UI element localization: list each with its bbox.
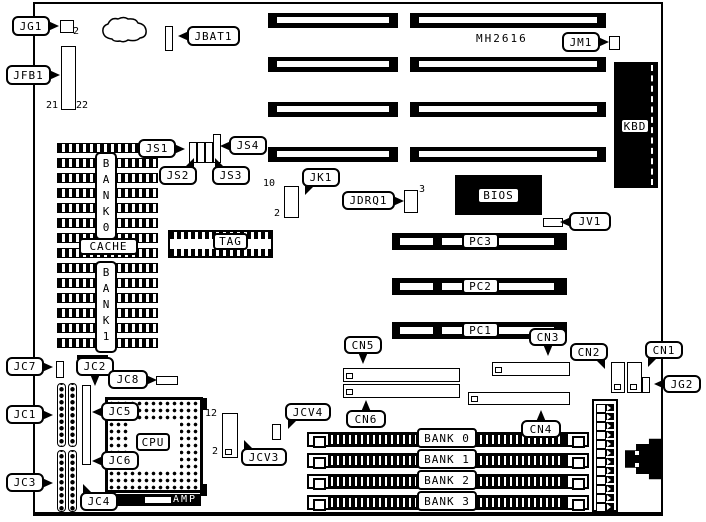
jfb1-pin-21: 21	[46, 100, 58, 112]
thermal-outline	[100, 14, 150, 46]
callout-pointer-left	[92, 456, 103, 466]
callout-jk1: JK1	[302, 168, 340, 187]
callout-js4-text: JS4	[237, 139, 260, 152]
pci-slot-contact-stripe	[498, 283, 554, 290]
jk1-header	[284, 186, 299, 218]
callout-jc7: JC7	[6, 357, 44, 376]
power-pin	[605, 467, 614, 474]
isa-slot-contact-stripe	[419, 17, 597, 23]
amp-label: AMP	[173, 494, 197, 506]
pin-1-marker	[630, 384, 637, 390]
jc3-jc4-header-col2	[68, 450, 77, 512]
callout-jc8-text: JC8	[117, 373, 140, 386]
cn3-header	[492, 362, 570, 376]
callout-jc3-text: JC3	[14, 476, 37, 489]
callout-cn5: CN5	[344, 336, 382, 354]
callout-pointer-up-left	[244, 440, 254, 450]
jg1-pin-2: 2	[73, 26, 79, 38]
port-notch	[635, 451, 639, 455]
simm-clip-right	[568, 434, 587, 445]
simm-contact-stripes	[480, 477, 562, 486]
callout-cn6: CN6	[346, 410, 386, 428]
callout-cn6-text: CN6	[355, 413, 378, 426]
isa-slot-1	[268, 13, 398, 28]
isa-slot-contact-stripe	[419, 106, 597, 112]
jg2-connector	[642, 377, 650, 393]
callout-jc5-text: JC5	[109, 405, 132, 418]
callout-jm1: JM1	[562, 32, 600, 52]
jcv4-jumper	[272, 424, 281, 440]
callout-pointer-right	[42, 410, 53, 420]
callout-cn3: CN3	[529, 328, 567, 346]
callout-pointer-left	[92, 407, 103, 417]
callout-cn2: CN2	[570, 343, 608, 361]
callout-jg2-text: JG2	[671, 378, 694, 391]
isa-slot-contact-stripe	[419, 61, 597, 67]
pc1-label: PC1	[462, 322, 499, 338]
cpu-socket-tab	[200, 484, 207, 496]
pci-slot-contact-stripe	[498, 238, 554, 245]
callout-pointer-down-left	[648, 357, 658, 367]
callout-jc8: JC8	[108, 370, 148, 389]
callout-jv1-text: JV1	[579, 215, 602, 228]
port-notch	[635, 463, 639, 467]
bank0-vertical-label: B A N K 0	[95, 152, 117, 240]
callout-pointer-up-left	[215, 158, 225, 168]
callout-jc7-text: JC7	[14, 360, 37, 373]
power-pin	[605, 431, 614, 438]
bank2-label-text: BANK 2	[424, 474, 470, 487]
bank1-vertical-label: B A N K 1	[95, 261, 117, 353]
callout-jc3: JC3	[6, 473, 44, 492]
kbd-label: KBD	[620, 118, 650, 134]
power-pin	[605, 458, 614, 465]
callout-pointer-right	[48, 21, 59, 31]
isa-slot-4	[268, 147, 398, 162]
simm-contact-stripes	[480, 456, 562, 465]
pc2-label: PC2	[462, 278, 499, 294]
isa-slot-contact-stripe	[419, 151, 597, 157]
callout-jc2-text: JC2	[84, 360, 107, 373]
pci-slot-contact-stripe	[442, 238, 463, 245]
callout-jcv4-text: JCV4	[293, 406, 324, 419]
kbd-connector-slot-line	[651, 65, 653, 185]
callout-pointer-up	[536, 410, 546, 422]
simm-clip-left	[309, 476, 328, 487]
jk1-pin-2: 2	[274, 208, 280, 220]
callout-cn4: CN4	[521, 420, 561, 438]
jc2-header-col2	[68, 383, 77, 447]
callout-cn2-text: CN2	[578, 346, 601, 359]
simm-contact-stripes	[331, 498, 416, 507]
isa-slot-3	[268, 102, 398, 117]
callout-cn3-text: CN3	[537, 331, 560, 344]
power-pin	[605, 494, 614, 501]
tag-label-text: TAG	[219, 235, 242, 248]
jbat1-connector	[165, 26, 173, 51]
callout-js2: JS2	[159, 166, 197, 185]
callout-cn1: CN1	[645, 341, 683, 359]
jcv3-pin-12: 12	[205, 408, 217, 420]
callout-pointer-left	[560, 217, 571, 227]
callout-js1-text: JS1	[146, 142, 169, 155]
simm-contact-stripes	[331, 477, 416, 486]
callout-jg1-text: JG1	[20, 20, 43, 33]
power-pin	[605, 413, 614, 420]
callout-pointer-up-right	[184, 158, 194, 168]
pin-1-marker	[346, 389, 353, 395]
jc7-connector	[56, 361, 64, 378]
simm-clip-right	[568, 476, 587, 487]
power-pin	[605, 485, 614, 492]
amp-connector-slot	[145, 497, 171, 503]
jc8-connector	[156, 376, 178, 385]
pc2-label-text: PC2	[469, 280, 492, 293]
power-pin	[605, 449, 614, 456]
simm-clip-left	[309, 434, 328, 445]
callout-pointer-left	[220, 141, 231, 151]
callout-pointer-down-right	[595, 359, 605, 369]
tag-label: TAG	[213, 233, 248, 250]
callout-js3-text: JS3	[220, 169, 243, 182]
jm1-connector	[609, 36, 620, 50]
callout-pointer-down-left	[288, 419, 298, 429]
callout-pointer-right	[146, 375, 157, 385]
callout-jbat1: JBAT1	[187, 26, 240, 46]
cn4-header	[468, 392, 570, 405]
callout-js3: JS3	[212, 166, 250, 185]
bank1-label: BANK 1	[417, 449, 477, 469]
power-pin	[605, 440, 614, 447]
jfb1-pin-22: 22	[76, 100, 88, 112]
callout-jm1-text: JM1	[570, 36, 593, 49]
callout-js4: JS4	[229, 136, 267, 155]
callout-js2-text: JS2	[167, 169, 190, 182]
pin-1-marker	[495, 367, 502, 373]
bank0-label: BANK 0	[417, 428, 477, 448]
cn2-header	[611, 362, 625, 393]
pc3-label: PC3	[462, 233, 499, 249]
callout-jc4-text: JC4	[88, 495, 111, 508]
callout-jc5: JC5	[101, 402, 139, 421]
callout-jk1-text: JK1	[310, 171, 333, 184]
pc1-label-text: PC1	[469, 324, 492, 337]
cn5-header	[343, 368, 460, 382]
simm-clip-right	[568, 455, 587, 466]
simm-clip-right	[568, 497, 587, 508]
jcv3-pin-2: 2	[212, 446, 218, 458]
callout-jv1: JV1	[569, 212, 611, 231]
pci-slot-contact-stripe	[442, 283, 463, 290]
bank0-label-text: BANK 0	[424, 432, 470, 445]
pci-slot-contact-stripe	[400, 327, 433, 334]
kbd-label-text: KBD	[624, 120, 647, 133]
board-part-number: MH2616	[476, 33, 528, 45]
callout-pointer-left	[178, 31, 189, 41]
isa-slot-2	[268, 57, 398, 72]
cn1-header	[627, 362, 642, 393]
jdrq1-header	[404, 190, 418, 213]
callout-jcv3-text: JCV3	[249, 451, 280, 464]
power-pin	[605, 404, 614, 411]
jc3-jc4-header-col1	[57, 450, 66, 512]
bank3-label: BANK 3	[417, 491, 477, 511]
jfb1-header	[61, 46, 76, 110]
power-connector	[592, 399, 618, 512]
callout-jdrq1: JDRQ1	[342, 191, 395, 210]
js3-jumper	[205, 142, 213, 163]
cache-label-text: CACHE	[89, 240, 127, 253]
amp-connector: AMP	[113, 494, 201, 506]
pci-slot-contact-stripe	[400, 283, 433, 290]
jc2-header-col1	[57, 383, 66, 447]
pin-1-marker	[614, 384, 621, 390]
simm-contact-stripes	[331, 435, 416, 444]
isa-slot-6	[410, 57, 606, 72]
callout-pointer-right	[42, 362, 53, 372]
power-pin	[605, 422, 614, 429]
simm-contact-stripes	[480, 498, 562, 507]
isa-slot-contact-stripe	[277, 106, 389, 112]
callout-pointer-down	[90, 374, 100, 386]
callout-pointer-right	[174, 144, 185, 154]
callout-pointer-down	[543, 344, 553, 356]
pc3-label-text: PC3	[469, 235, 492, 248]
motherboard-layout-diagram: AMPJG1JFB1JBAT1JM1JS1JS4JS2JS3JK1JDRQ1JV…	[0, 0, 706, 522]
callout-pointer-down-left	[305, 185, 315, 195]
tag-chip-pin-row	[170, 249, 271, 256]
jcv3-header	[222, 413, 238, 458]
bios-label-text: BIOS	[483, 189, 514, 202]
bank3-label-text: BANK 3	[424, 495, 470, 508]
power-pin	[605, 503, 614, 510]
pin-1-marker	[471, 396, 478, 402]
isa-slot-contact-stripe	[277, 61, 389, 67]
bios-label: BIOS	[477, 187, 520, 204]
bank1-label-text: BANK 1	[424, 453, 470, 466]
callout-cn1-text: CN1	[653, 344, 676, 357]
cpu-label: CPU	[136, 433, 170, 451]
callout-jc1-text: JC1	[14, 408, 37, 421]
isa-slot-contact-stripe	[277, 151, 389, 157]
callout-jc4: JC4	[80, 492, 118, 511]
pci-slot-contact-stripe	[400, 238, 433, 245]
cpu-label-text: CPU	[142, 436, 165, 449]
bank2-label: BANK 2	[417, 470, 477, 490]
callout-js1: JS1	[138, 139, 176, 158]
callout-jc1: JC1	[6, 405, 44, 424]
isa-slot-5	[410, 13, 606, 28]
callout-pointer-right	[393, 196, 404, 206]
cache-label: CACHE	[79, 238, 138, 255]
jk1-pin-10: 10	[263, 178, 275, 190]
isa-slot-contact-stripe	[277, 17, 389, 23]
callout-cn4-text: CN4	[530, 423, 553, 436]
pin-1-marker	[225, 449, 232, 455]
callout-pointer-right	[598, 37, 609, 47]
callout-jfb1: JFB1	[6, 65, 51, 85]
callout-jfb1-text: JFB1	[13, 69, 44, 82]
callout-jc6-text: JC6	[109, 454, 132, 467]
callout-pointer-right	[42, 478, 53, 488]
callout-pointer-left	[654, 379, 665, 389]
callout-pointer-right	[49, 70, 60, 80]
jdrq1-pin-3: 3	[419, 184, 425, 196]
callout-pointer-up	[361, 400, 371, 412]
callout-jcv3: JCV3	[241, 448, 287, 466]
power-pin	[605, 476, 614, 483]
isa-slot-8	[410, 147, 606, 162]
js2-jumper	[197, 142, 205, 163]
pin-1-marker	[346, 373, 353, 379]
callout-pointer-down	[358, 352, 368, 364]
callout-cn5-text: CN5	[352, 339, 375, 352]
callout-jg1: JG1	[12, 16, 50, 36]
callout-jc6: JC6	[101, 451, 139, 470]
isa-slot-7	[410, 102, 606, 117]
callout-jbat1-text: JBAT1	[194, 30, 232, 43]
jc5-jc6-header	[82, 385, 91, 465]
callout-jg2: JG2	[663, 375, 701, 393]
simm-clip-left	[309, 455, 328, 466]
pci-slot-contact-stripe	[442, 327, 463, 334]
callout-pointer-up-left	[83, 484, 93, 494]
simm-contact-stripes	[331, 456, 416, 465]
simm-clip-left	[309, 497, 328, 508]
callout-jcv4: JCV4	[285, 403, 331, 421]
callout-jdrq1-text: JDRQ1	[349, 194, 387, 207]
jg1-connector	[60, 20, 74, 33]
cn6-header	[343, 384, 460, 398]
